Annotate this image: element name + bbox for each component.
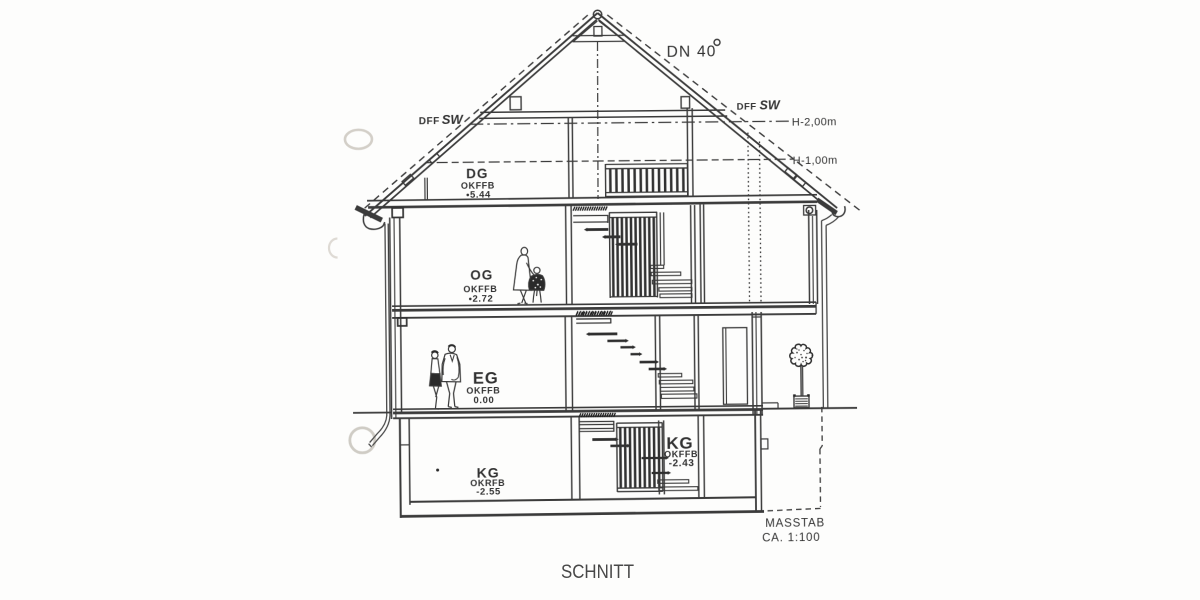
svg-text:SW: SW xyxy=(760,98,781,112)
svg-text:SCHNITT: SCHNITT xyxy=(561,562,634,583)
svg-text:DFF: DFF xyxy=(419,116,440,127)
svg-text:•2.72: •2.72 xyxy=(469,293,494,304)
svg-text:-2.43: -2.43 xyxy=(669,458,695,469)
svg-text:OG: OG xyxy=(470,268,493,283)
svg-text:DN 40: DN 40 xyxy=(667,43,717,60)
svg-text:CA. 1:100: CA. 1:100 xyxy=(762,532,820,545)
svg-text:DFF: DFF xyxy=(737,101,757,112)
svg-text:-2.55: -2.55 xyxy=(476,487,501,498)
svg-text:DG: DG xyxy=(466,166,488,181)
svg-text:H-1,00m: H-1,00m xyxy=(793,155,838,167)
svg-text:0.00: 0.00 xyxy=(473,395,494,406)
svg-text:H-2,00m: H-2,00m xyxy=(792,116,837,128)
svg-text:SW: SW xyxy=(442,112,465,127)
svg-text:•5.44: •5.44 xyxy=(466,190,491,201)
svg-text:MASSTAB: MASSTAB xyxy=(765,517,825,530)
